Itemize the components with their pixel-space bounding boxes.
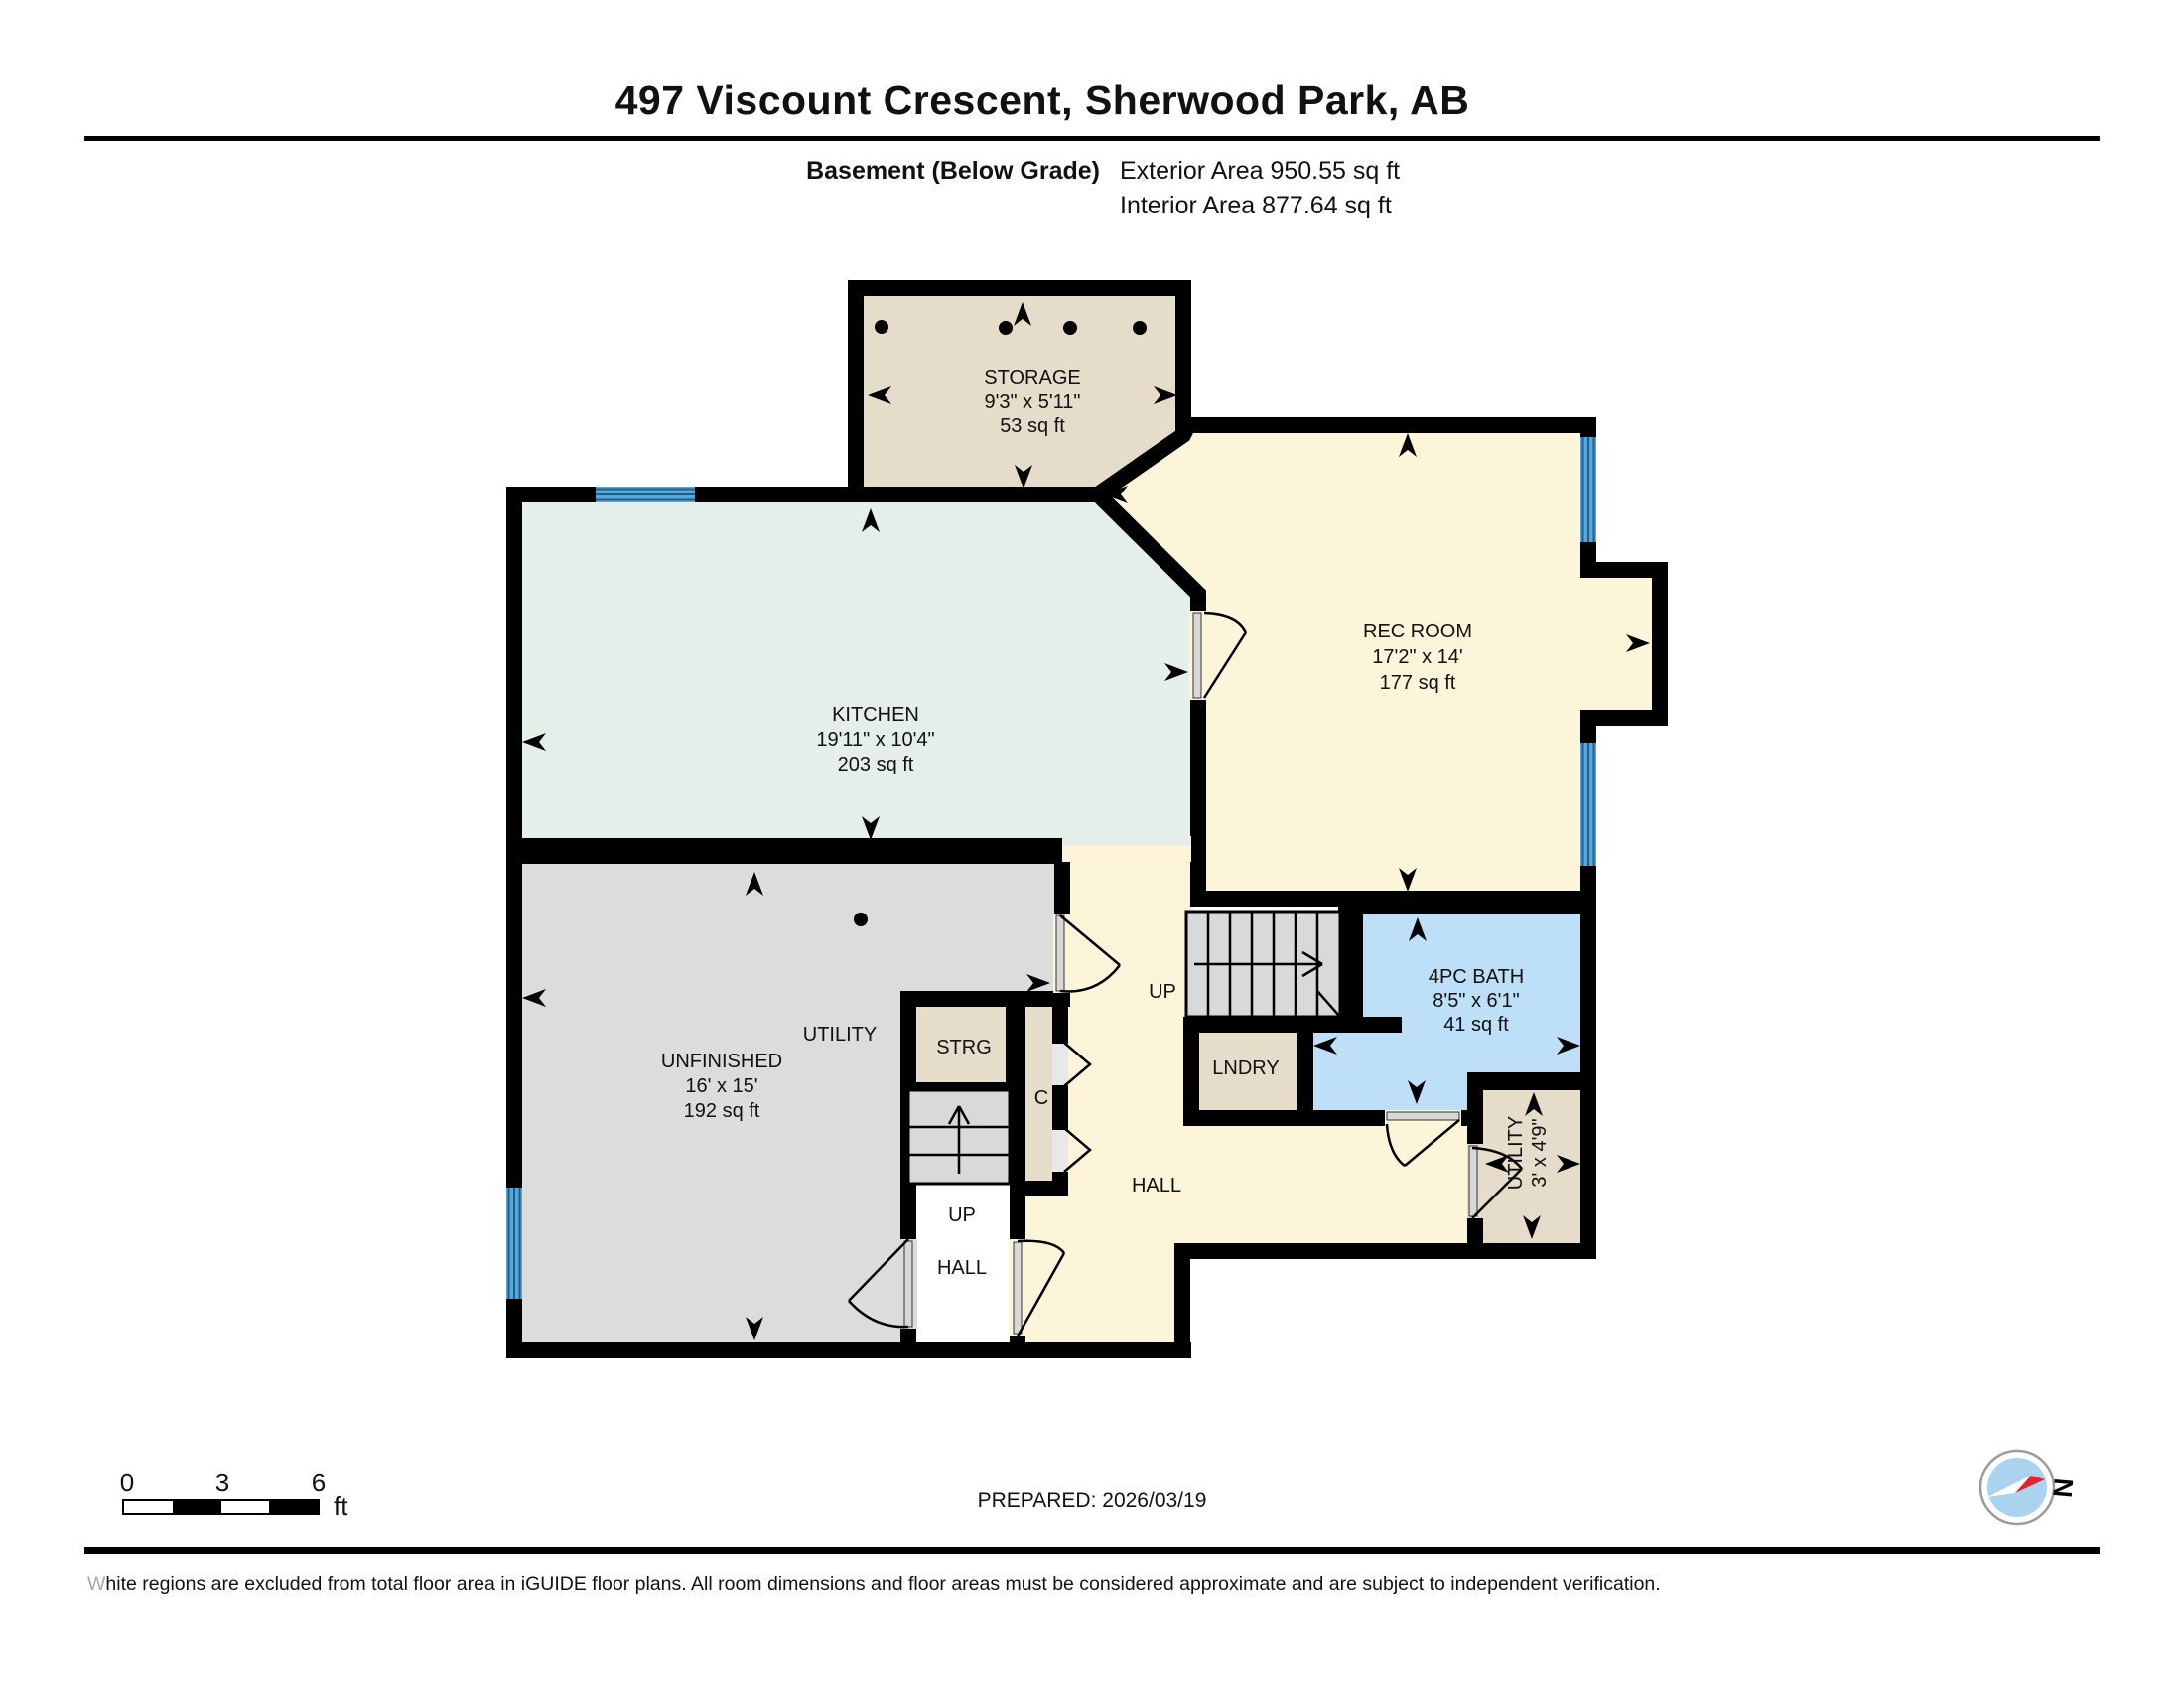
floorplan-page: 497 Viscount Crescent, Sherwood Park, AB… [0,0,2184,1688]
unfinished-area: 192 sq ft [684,1100,760,1122]
post-dot [854,913,868,926]
unfinished-dims: 16' x 15' [685,1075,757,1097]
laundry-label: LNDRY [1212,1057,1279,1079]
window-rec-upper [1580,437,1596,542]
post-dot [999,321,1013,335]
window-unfinished [506,1188,522,1299]
strg-label: STRG [936,1037,992,1058]
stairs-small [908,1090,1010,1184]
bath-dims: 8'5" x 6'1" [1433,990,1519,1012]
storage-dims: 9'3" x 5'11" [984,391,1080,413]
kitchen-area: 203 sq ft [838,754,914,775]
unfinished-label: UNFINISHED [661,1051,782,1072]
room-kitchen [514,494,1198,846]
up-main-label: UP [1149,981,1176,1003]
rec-room-dims: 17'2" x 14' [1372,646,1462,668]
storage-label: STORAGE [984,367,1080,389]
window-kitchen [596,487,695,502]
up-lower-label: UP [948,1204,976,1226]
hall-lower-label: HALL [937,1257,987,1279]
wall-stairs-right [1338,898,1363,1027]
bath-label: 4PC BATH [1429,966,1524,988]
window-rec-lower [1580,743,1596,866]
wall-step [1174,1243,1190,1354]
open-boundary-kitchen [1062,836,1191,846]
closet-label: C [1034,1087,1048,1109]
hall-label: HALL [1132,1175,1181,1196]
rec-room-area: 177 sq ft [1380,672,1456,694]
kitchen-label: KITCHEN [832,704,919,726]
rec-room-label: REC ROOM [1363,621,1472,642]
wall-bottom-right [1174,1243,1483,1259]
kitchen-dims: 19'11" x 10'4" [816,729,934,751]
utility-small-label: UTILITY [1505,1116,1527,1190]
post-dot [1063,321,1077,335]
bath-area: 41 sq ft [1443,1014,1509,1036]
stairs-main [1186,912,1340,1017]
utility-area-label: UTILITY [803,1024,877,1046]
post-dot [1133,321,1147,335]
floorplan-drawing: STORAGE 9'3" x 5'11" 53 sq ft KITCHEN 19… [0,0,2184,1688]
post-dot [875,320,888,334]
wall-bottom-hall [897,1342,1191,1358]
footer-divider [84,1547,2100,1554]
prepared-date: PREPARED: 2026/03/19 [0,1489,2184,1513]
utility-small-dims: 3' x 4'9" [1529,1118,1551,1187]
open-boundary-hall [1062,845,1191,862]
storage-area: 53 sq ft [1000,415,1065,437]
disclaimer-text: White regions are excluded from total fl… [87,1573,1974,1596]
